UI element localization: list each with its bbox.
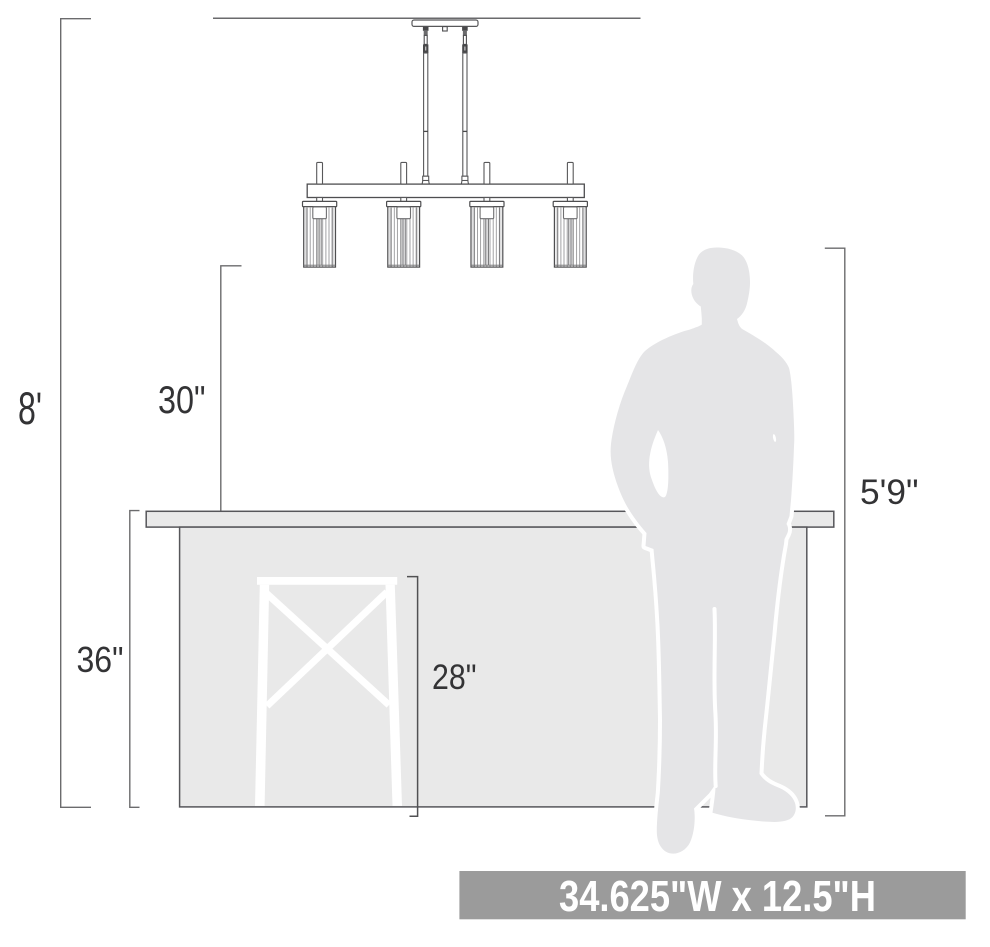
- svg-text:36": 36": [77, 639, 124, 680]
- svg-text:28": 28": [432, 658, 477, 697]
- svg-text:5'9": 5'9": [860, 472, 919, 512]
- svg-text:30": 30": [158, 379, 206, 422]
- svg-text:8': 8': [18, 383, 42, 434]
- svg-text:34.625"W x 12.5"H: 34.625"W x 12.5"H: [559, 872, 876, 921]
